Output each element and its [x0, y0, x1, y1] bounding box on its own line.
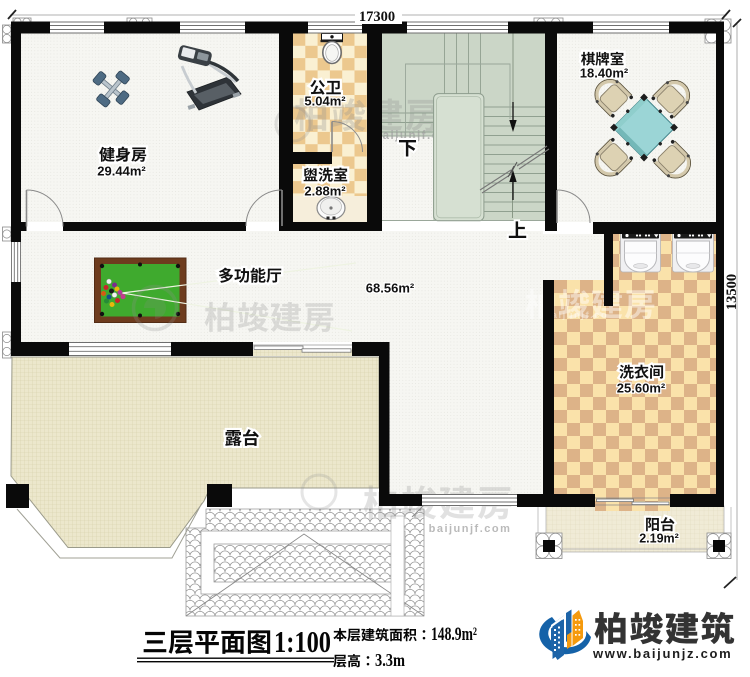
svg-text:2.88m²: 2.88m² — [304, 184, 346, 199]
svg-text:2.19m²: 2.19m² — [639, 532, 679, 546]
svg-text:18.40m²: 18.40m² — [580, 66, 629, 81]
svg-text:148.9m²: 148.9m² — [431, 624, 477, 645]
svg-text:baijunjf.com: baijunjf.com — [429, 523, 512, 535]
svg-text:25.60m²: 25.60m² — [617, 381, 666, 396]
svg-text:www.baijunjz.com: www.baijunjz.com — [592, 646, 732, 661]
svg-text:aijunjf.co: aijunjf.co — [552, 310, 609, 321]
svg-text:13500: 13500 — [724, 274, 740, 310]
svg-text:5.04m²: 5.04m² — [304, 94, 346, 109]
svg-text:68.56m²: 68.56m² — [366, 281, 415, 296]
svg-text:3.3m: 3.3m — [375, 650, 405, 670]
svg-text:1:100: 1:100 — [274, 624, 331, 659]
svg-text:29.44m²: 29.44m² — [97, 164, 146, 179]
svg-text:17300: 17300 — [359, 9, 395, 25]
